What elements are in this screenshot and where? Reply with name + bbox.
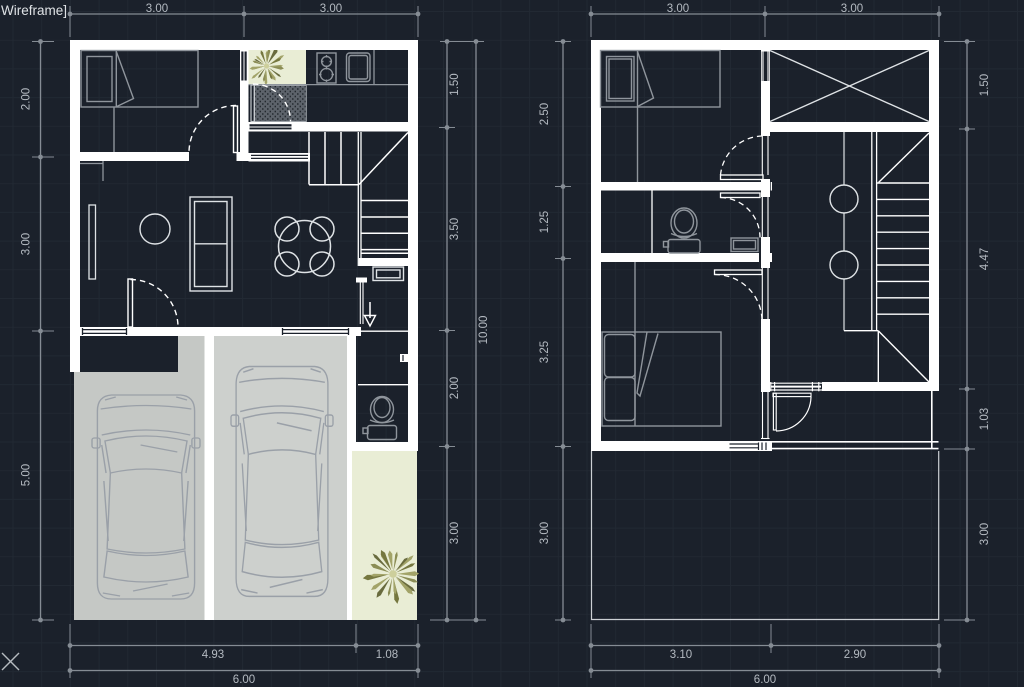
svg-text:3.00: 3.00 [146,3,168,15]
svg-text:3.25: 3.25 [539,341,551,363]
svg-text:1.50: 1.50 [449,73,461,95]
svg-text:1.50: 1.50 [979,74,991,96]
svg-text:6.00: 6.00 [754,674,776,686]
svg-text:2.00: 2.00 [21,88,33,110]
svg-text:5.00: 5.00 [21,464,33,486]
svg-text:2.90: 2.90 [844,649,866,661]
svg-text:3.00: 3.00 [979,523,991,545]
svg-text:3.00: 3.00 [449,522,461,544]
svg-text:4.93: 4.93 [202,649,224,661]
svg-text:2.50: 2.50 [539,103,551,125]
svg-text:2.00: 2.00 [449,377,461,399]
svg-text:3.00: 3.00 [320,3,342,15]
svg-text:3.00: 3.00 [667,3,689,15]
svg-text:3.00: 3.00 [841,3,863,15]
svg-text:1.08: 1.08 [376,649,398,661]
svg-text:1.25: 1.25 [539,211,551,233]
svg-text:3.10: 3.10 [670,649,692,661]
svg-text:10.00: 10.00 [478,316,490,345]
svg-text:6.00: 6.00 [233,674,255,686]
svg-text:3.50: 3.50 [449,218,461,240]
svg-text:1.03: 1.03 [979,408,991,430]
svg-text:3.00: 3.00 [21,233,33,255]
svg-text:3.00: 3.00 [539,522,551,544]
svg-text:Wireframe]: Wireframe] [1,3,67,18]
svg-text:4.47: 4.47 [979,248,991,270]
